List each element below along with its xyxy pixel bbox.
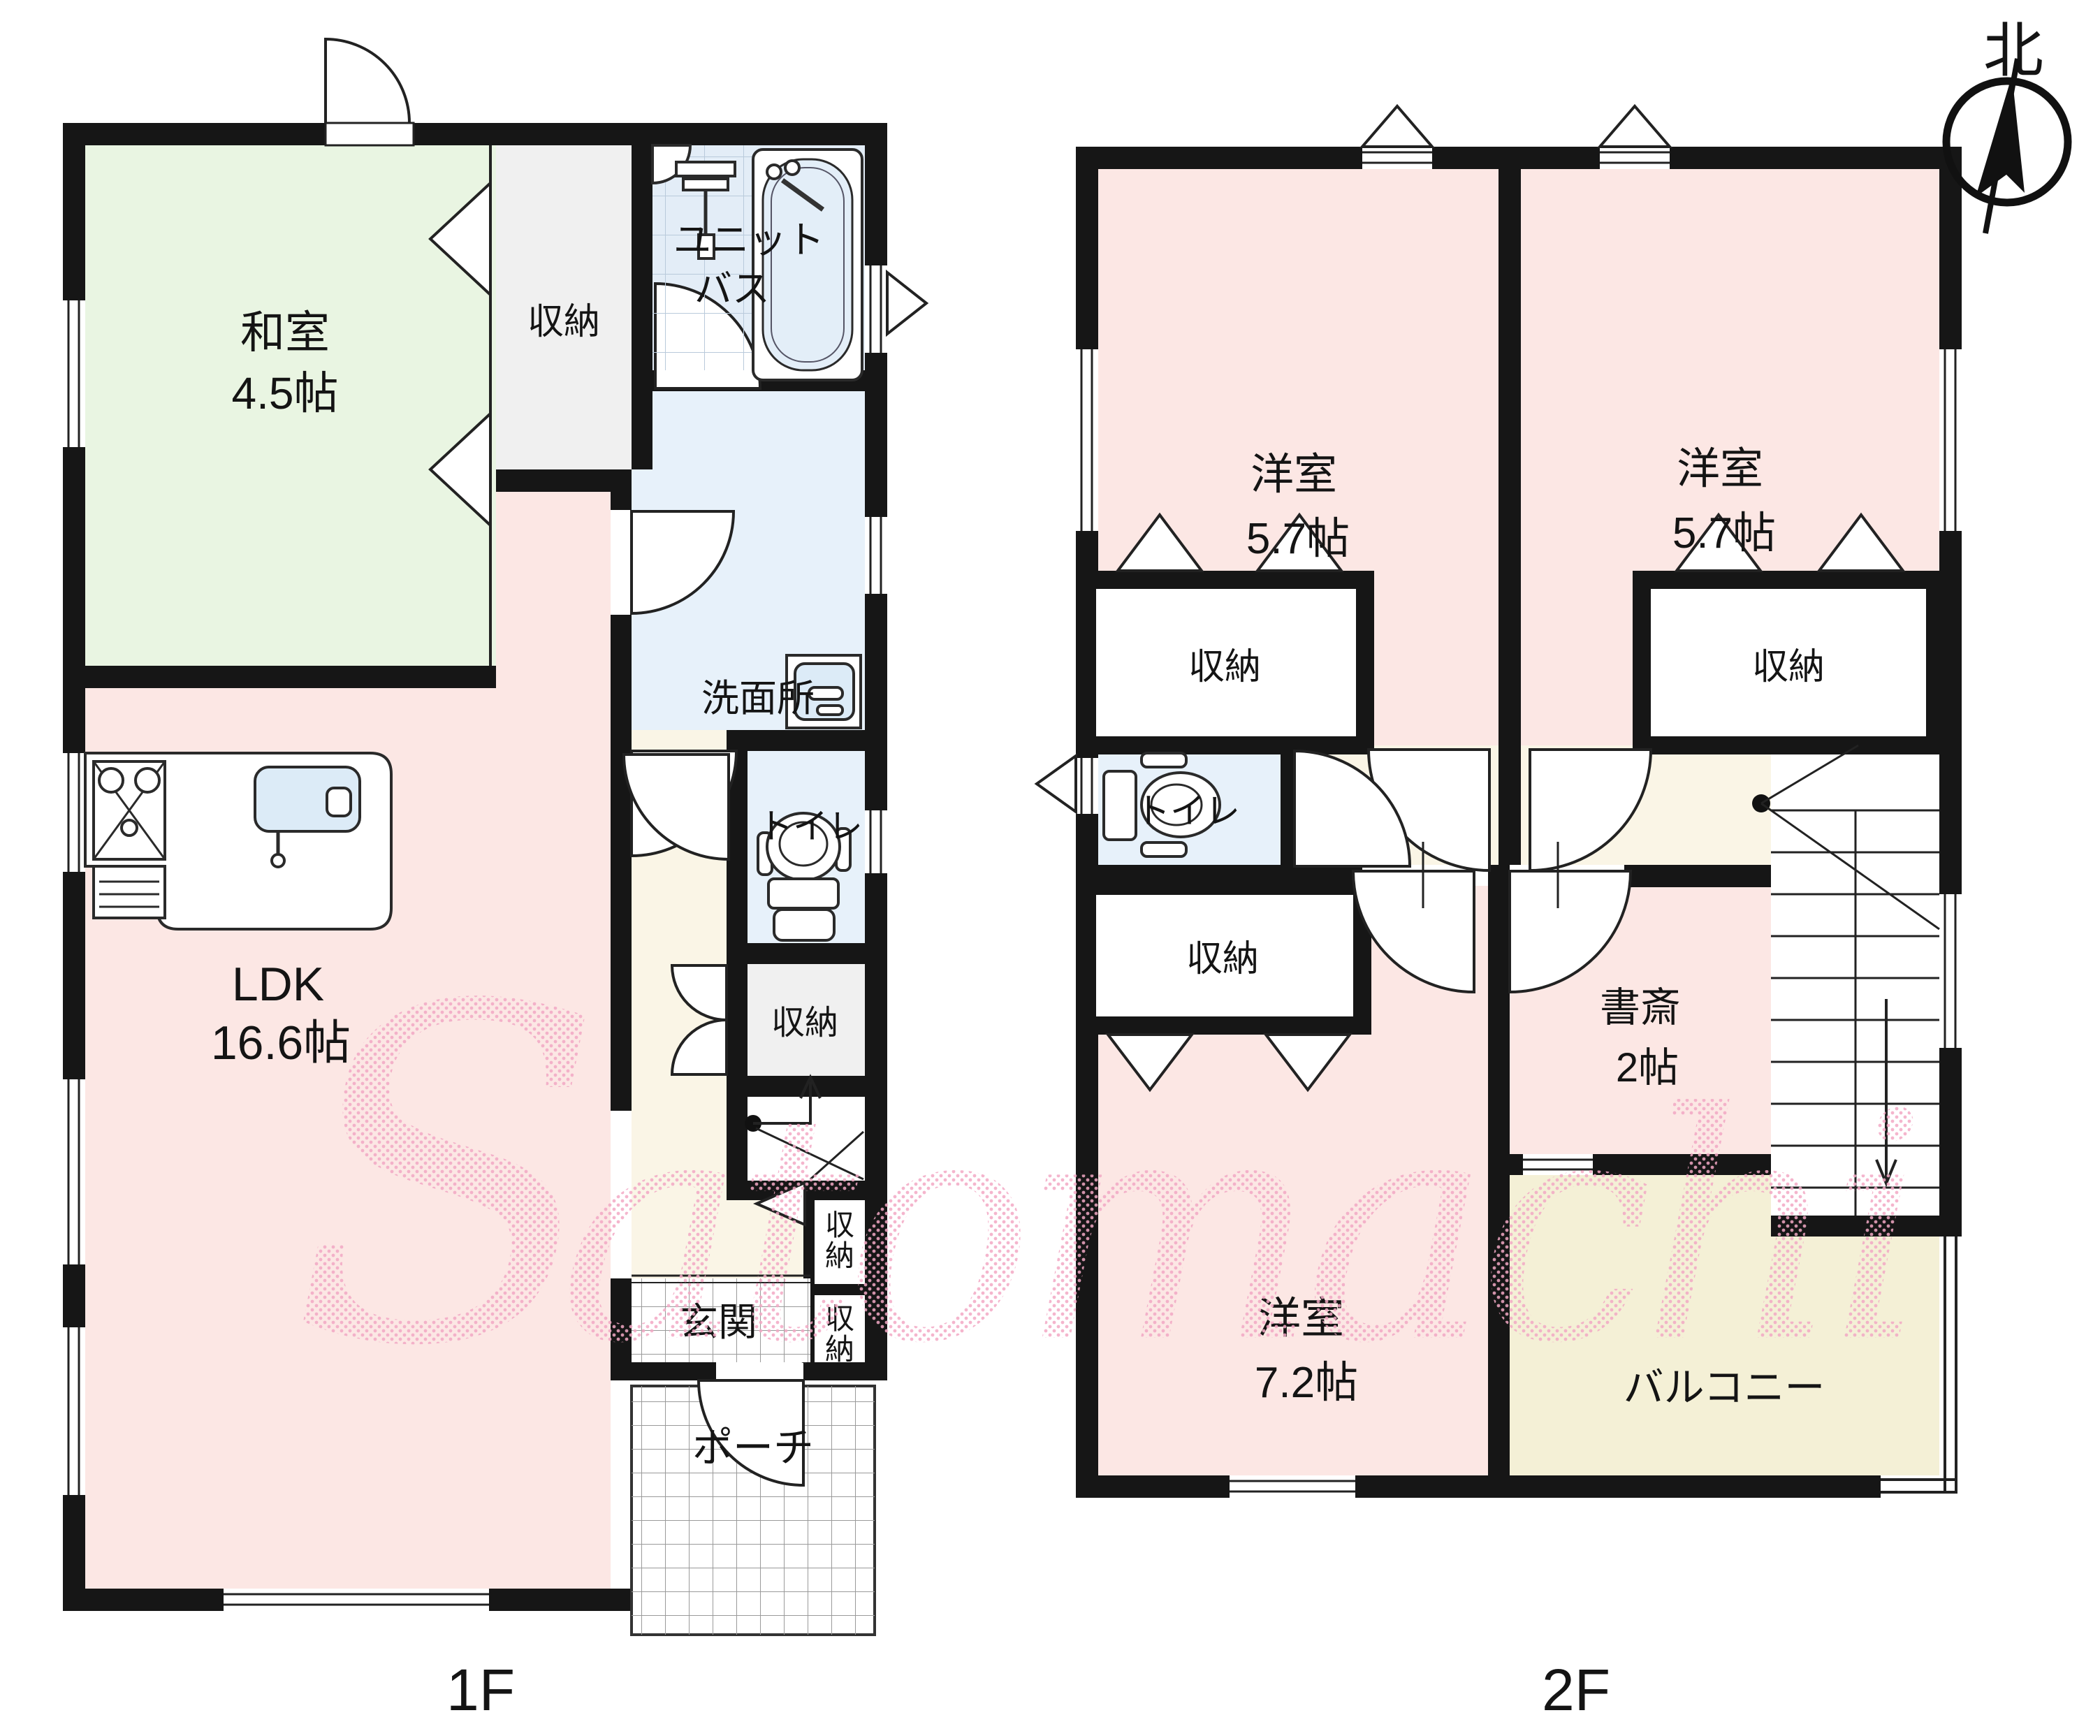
window-washitsu-left xyxy=(63,300,85,447)
label-toilet-2f: トイレ xyxy=(1135,792,1240,831)
label-yoshitsu-r-2: 5.7帖 xyxy=(1672,509,1776,557)
window-ldk-left-2 xyxy=(63,1327,85,1495)
label-yoshitsu-r-1: 洋室 xyxy=(1677,445,1763,493)
window-ldk-bottom xyxy=(224,1589,489,1611)
label-shosai-1: 書斎 xyxy=(1600,985,1681,1030)
label-closet-b-1f: 収納 xyxy=(771,1005,838,1042)
window-top-left-2f xyxy=(1362,106,1432,169)
label-yoshitsu-l-2: 5.7帖 xyxy=(1246,515,1350,563)
bath-fixtures xyxy=(652,145,862,380)
label-unitbath-2: バス xyxy=(694,268,770,310)
door-gap-washitsu-top xyxy=(326,123,414,145)
label-closet-c-2f: 収納 xyxy=(1186,939,1259,979)
compass-needle xyxy=(1976,75,2025,197)
window-yoshitsu-right-wall xyxy=(1939,349,1962,531)
vent-triangle-top-left xyxy=(1362,106,1432,147)
label-closet-l-2f: 収納 xyxy=(1188,647,1261,687)
label-washitsu-1: 和室 xyxy=(240,307,330,358)
window-stairs-right xyxy=(1939,894,1962,1048)
stove-icon xyxy=(94,761,165,918)
compass-icon: 北 xyxy=(1946,17,2068,233)
door-arc-washitsu-exterior xyxy=(326,39,409,123)
label-porch: ポーチ xyxy=(692,1425,814,1471)
window-bath-right xyxy=(865,265,926,353)
window-top-right-2f xyxy=(1600,106,1670,169)
vent-triangle-top-right xyxy=(1600,106,1670,147)
label-closet-a-1f: 収納 xyxy=(527,302,600,342)
window-ldk-left-1 xyxy=(63,1079,85,1264)
kitchen-counter-icon xyxy=(85,753,391,929)
room-vestibule xyxy=(496,492,611,688)
floor-plan-2f: 洋室 5.7帖 洋室 5.7帖 収納 収納 トイレ 収納 書斎 2帖 洋室 7.… xyxy=(1037,106,1962,1723)
bathtub-icon xyxy=(753,149,862,380)
floorplan-canvas: 和室 4.5帖 収納 ユニット バス 洗面所 トイレ LDK 16.6帖 収納 … xyxy=(0,0,2100,1736)
label-floor-2f: 2F xyxy=(1542,1657,1610,1723)
label-yoshitsu-l-1: 洋室 xyxy=(1250,451,1337,499)
label-senmenjo: 洗面所 xyxy=(701,678,815,720)
label-washitsu-2: 4.5帖 xyxy=(232,368,339,418)
window-kitchen-left xyxy=(63,753,85,872)
window-toilet-right-1f xyxy=(865,810,887,873)
window-toilet-left-2f xyxy=(1037,756,1098,814)
watermark-rest: atomachi xyxy=(559,1046,1916,1413)
label-floor-1f: 1F xyxy=(446,1657,515,1723)
window-yoshitsu72-bottom xyxy=(1230,1475,1355,1498)
label-closet-r-2f: 収納 xyxy=(1752,647,1825,687)
floor-plan-1f: 和室 4.5帖 収納 ユニット バス 洗面所 トイレ LDK 16.6帖 収納 … xyxy=(63,39,926,1723)
porch-area xyxy=(632,1380,875,1635)
label-toilet-1f: トイレ xyxy=(758,807,863,846)
label-unitbath-1: ユニット xyxy=(673,219,824,261)
window-senmenjo-right xyxy=(865,517,887,594)
vent-triangle-toilet-2f xyxy=(1037,756,1076,812)
vent-triangle-bath xyxy=(887,272,926,334)
window-yoshitsu-left-wall xyxy=(1076,349,1098,531)
